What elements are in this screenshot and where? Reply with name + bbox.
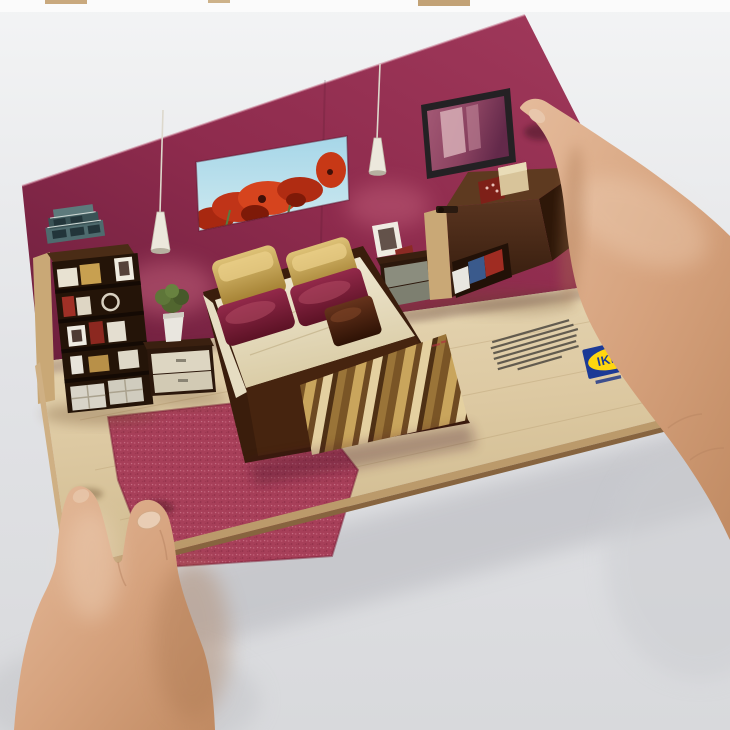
mirror-reflection-band — [440, 107, 466, 158]
nightstand-left — [143, 338, 216, 396]
books-red — [62, 296, 76, 317]
storage-box-gold — [79, 263, 101, 285]
hand-shading — [154, 560, 230, 720]
hand-highlight — [64, 510, 120, 620]
books-white — [57, 267, 79, 287]
photo-canvas: IKEA — [0, 0, 730, 730]
lamp-glow-right — [346, 183, 430, 229]
background-top-strip — [0, 0, 730, 12]
decor-house — [70, 355, 84, 374]
popup-card-scene: IKEA — [0, 0, 730, 730]
